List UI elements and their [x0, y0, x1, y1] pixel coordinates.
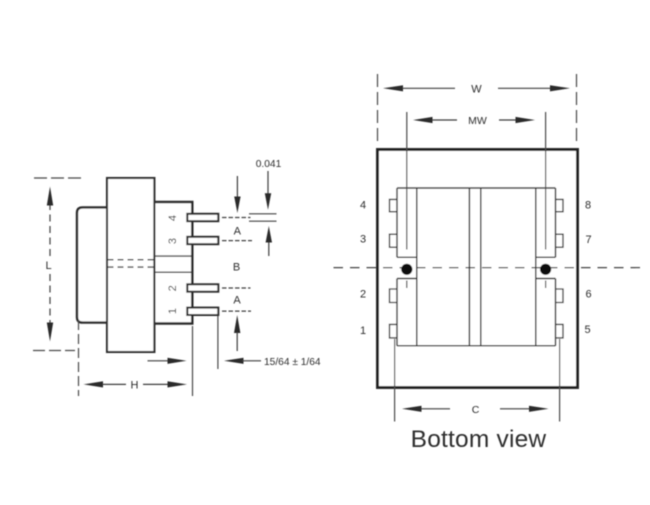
svg-text:0.041: 0.041: [256, 159, 282, 170]
svg-text:B: B: [233, 262, 240, 274]
svg-text:H: H: [131, 379, 139, 391]
svg-text:8: 8: [585, 200, 591, 212]
svg-text:A: A: [234, 226, 242, 238]
svg-text:5: 5: [584, 324, 590, 336]
svg-text:2: 2: [360, 289, 366, 301]
svg-text:W: W: [471, 83, 482, 95]
svg-text:4: 4: [360, 200, 366, 212]
svg-text:3: 3: [360, 234, 366, 246]
svg-text:7: 7: [585, 234, 591, 246]
svg-text:1: 1: [167, 308, 179, 314]
svg-text:L: L: [45, 260, 51, 272]
svg-text:C: C: [472, 404, 480, 416]
svg-text:3: 3: [167, 238, 179, 244]
svg-text:4: 4: [167, 215, 179, 221]
svg-text:Bottom view: Bottom view: [411, 426, 547, 453]
svg-text:15/64 ± 1/64: 15/64 ± 1/64: [264, 357, 321, 368]
svg-text:MW: MW: [468, 115, 487, 127]
svg-text:6: 6: [585, 289, 591, 301]
svg-text:A: A: [233, 295, 241, 307]
svg-text:1: 1: [360, 325, 366, 337]
svg-text:2: 2: [167, 285, 179, 291]
